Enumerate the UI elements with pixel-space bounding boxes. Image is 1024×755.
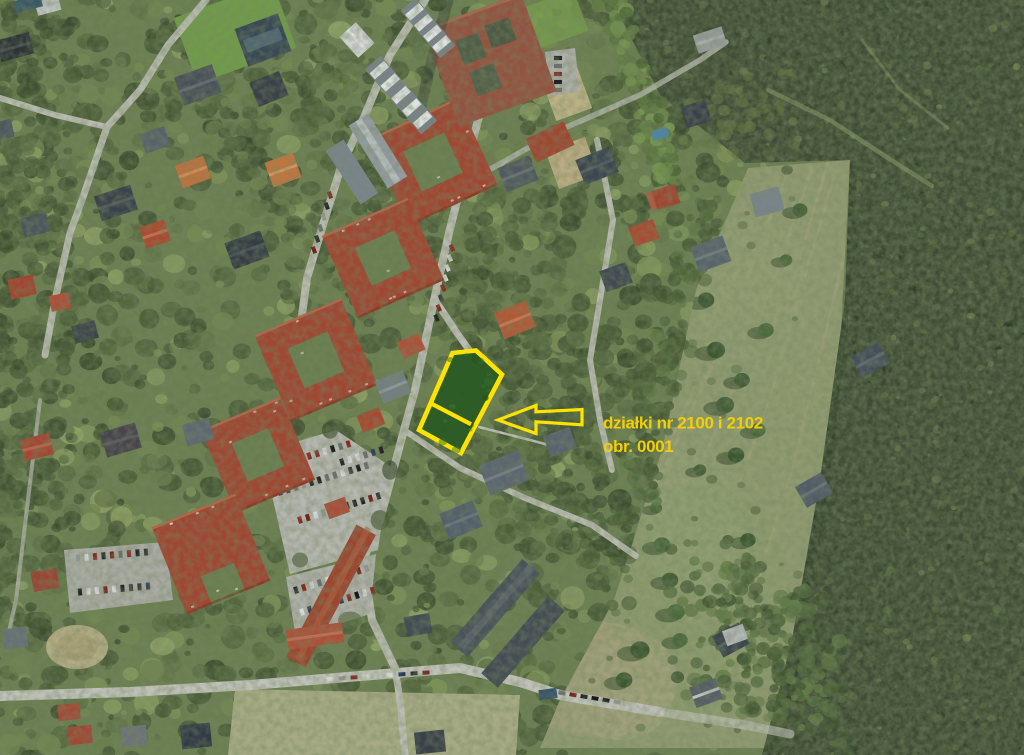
svg-text:działki nr 2100 i 2102: działki nr 2100 i 2102 xyxy=(603,414,763,433)
svg-text:obr. 0001: obr. 0001 xyxy=(603,437,673,456)
